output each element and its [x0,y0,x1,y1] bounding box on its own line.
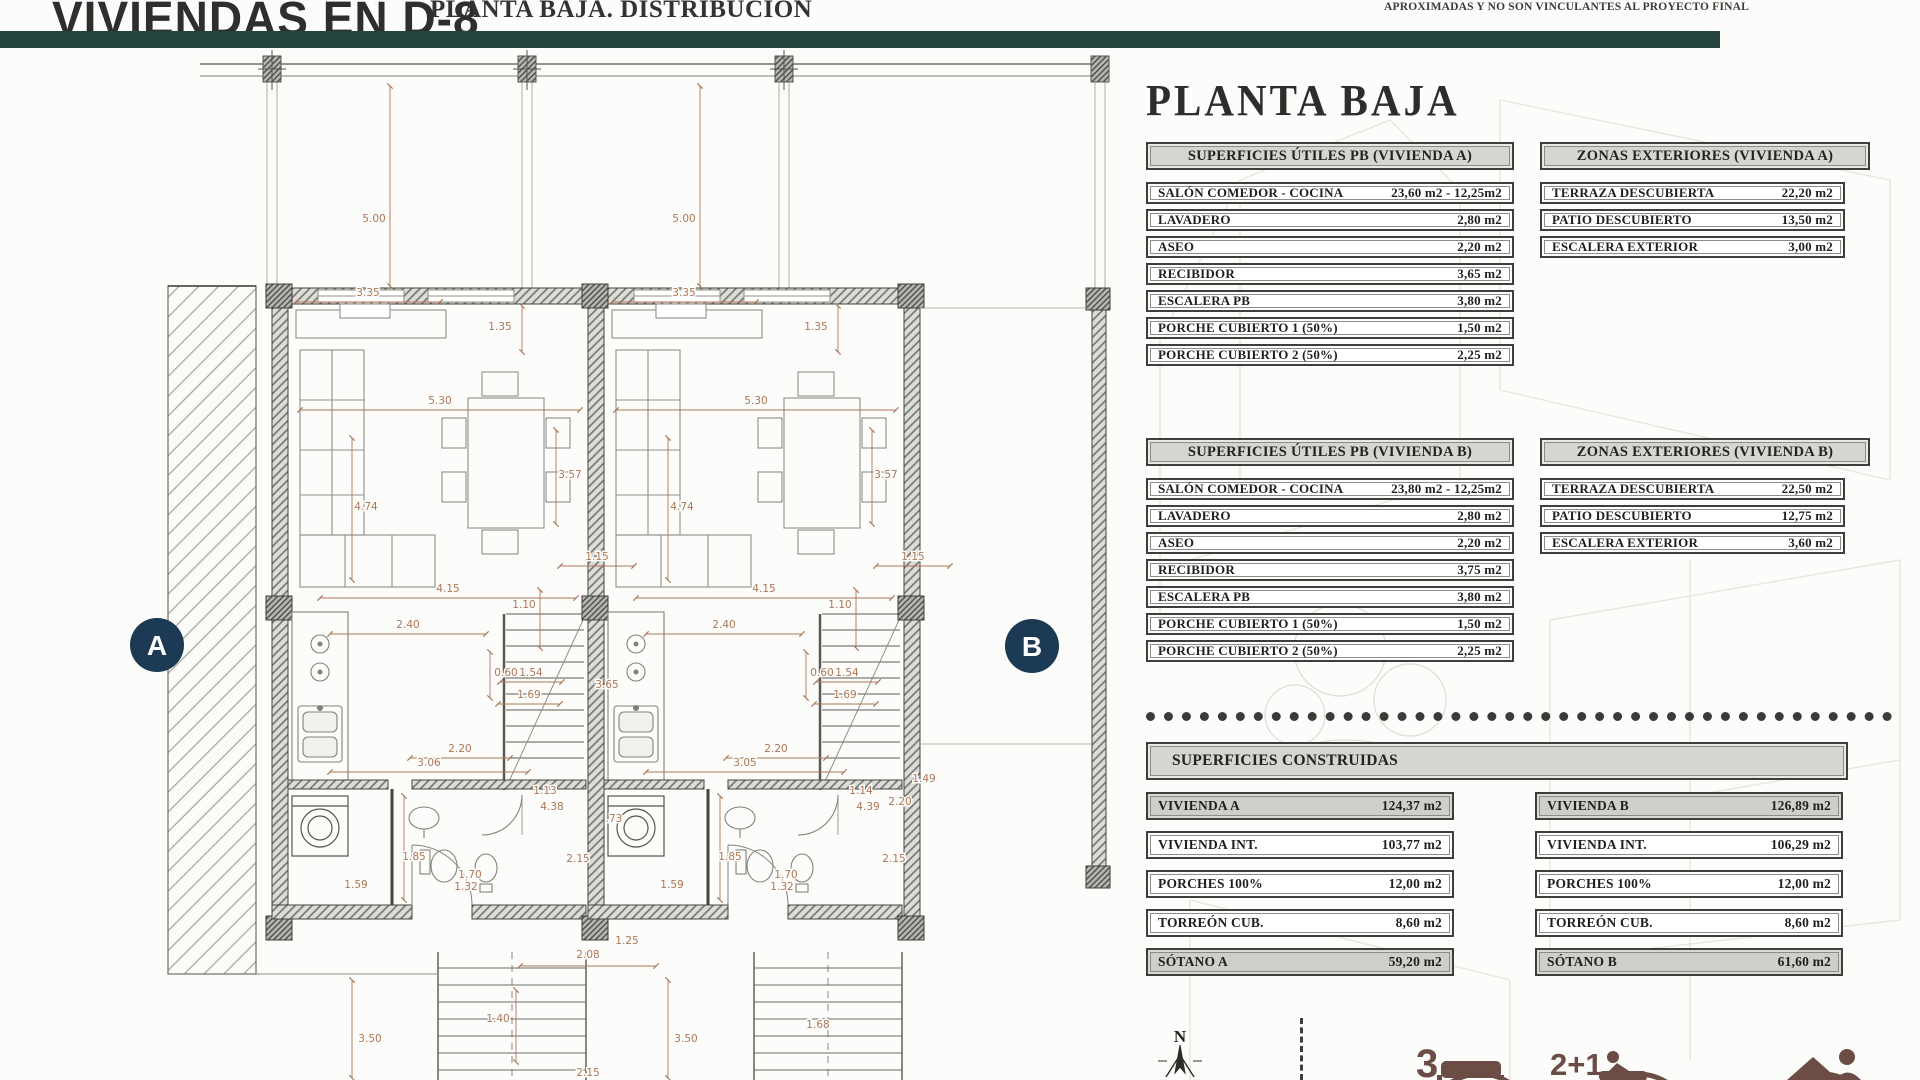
table-row: TORREÓN CUB.8,60 m2 [1146,909,1454,937]
table-row: PORCHE CUBIERTO 2 (50%)2,25 m2 [1146,640,1514,662]
dimension-label: 1.70 [458,869,481,881]
structural-grid [200,50,1109,300]
dimension-label: 2.15 [566,853,589,865]
svg-text:N: N [1174,1027,1187,1046]
dotted-separator [1146,712,1892,721]
row-label: VIVIENDA A [1158,798,1240,814]
table-row: PORCHE CUBIERTO 1 (50%)1,50 m2 [1146,317,1514,339]
floor-plan: 5.005.003.353.351.351.355.305.304.744.74… [0,46,1150,1080]
dimension-label: 1.15 [901,551,924,563]
table-superficies-utiles-vivienda-a: SUPERFICIES ÚTILES PB (VIVIENDA A)SALÓN … [1146,142,1514,371]
exterior-terrace-wall [256,288,1110,974]
construidas-column-b: VIVIENDA B126,89 m2VIVIENDA INT.106,29 m… [1535,792,1843,987]
row-value: 2,20 m2 [1457,239,1502,255]
dimension-label: 4.74 [354,501,378,513]
row-value: 8,60 m2 [1396,915,1442,931]
dimension-label: 2.15 [882,853,905,865]
row-label: PORCHES 100% [1158,876,1263,892]
dimension-label: 2.20 [888,796,911,808]
row-label: TORREÓN CUB. [1158,915,1264,931]
row-value: 22,20 m2 [1782,185,1833,201]
row-value: 124,37 m2 [1382,798,1442,814]
table-row: TERRAZA DESCUBIERTA22,50 m2 [1540,478,1845,500]
dimension-label: 3.06 [417,757,441,769]
dimension-label: 3.35 [672,287,695,299]
row-value: 23,60 m2 - 12,25m2 [1391,185,1502,201]
dimension-label: 4.15 [436,583,459,595]
row-label: RECIBIDOR [1158,266,1235,282]
table-row: ESCALERA EXTERIOR3,00 m2 [1540,236,1845,258]
dimension-label: 1.10 [828,599,851,611]
dimension-label: 4.74 [670,501,694,513]
dimension-lines [296,86,950,1078]
dimension-label: 1.32 [770,881,793,893]
row-value: 3,00 m2 [1788,239,1833,255]
row-value: 8,60 m2 [1785,915,1831,931]
table-row: LAVADERO2,80 m2 [1146,209,1514,231]
dimension-label: 4.38 [540,801,563,813]
table-row: LAVADERO2,80 m2 [1146,505,1514,527]
row-value: 61,60 m2 [1778,954,1831,970]
dimension-label: 1.70 [774,869,797,881]
table-header: SUPERFICIES ÚTILES PB (VIVIENDA A) [1146,142,1514,170]
dimension-label: 1.85 [718,851,741,863]
dimension-label: 3.50 [358,1033,381,1045]
table-row: ESCALERA EXTERIOR3,60 m2 [1540,532,1845,554]
dimension-label: 1.54 [835,667,859,679]
compass-icon: N [1140,1025,1220,1080]
dimension-label: 1.32 [454,881,477,893]
row-label: ESCALERA EXTERIOR [1552,239,1698,255]
row-label: VIVIENDA INT. [1547,837,1647,853]
dimension-label: 1.59 [660,879,683,891]
table-row: ASEO2,20 m2 [1146,532,1514,554]
dimension-label: 2.20 [764,743,787,755]
row-label: ASEO [1158,239,1194,255]
row-label: SÓTANO A [1158,954,1228,970]
table-row: VIVIENDA A124,37 m2 [1146,792,1454,820]
row-label: PATIO DESCUBIERTO [1552,212,1692,228]
unit-marker-b: B [1005,619,1059,673]
row-value: 1,50 m2 [1457,320,1502,336]
row-value: 12,00 m2 [1778,876,1831,892]
row-value: 22,50 m2 [1782,481,1833,497]
table-row: PORCHE CUBIERTO 2 (50%)2,25 m2 [1146,344,1514,366]
table-row: PORCHES 100%12,00 m2 [1535,870,1843,898]
dimension-label: .73 [606,813,623,825]
row-label: TERRAZA DESCUBIERTA [1552,185,1714,201]
row-label: PATIO DESCUBIERTO [1552,508,1692,524]
footer-dashed-divider [1300,1018,1303,1080]
dimension-label: 3.57 [874,469,897,481]
table-header: SUPERFICIES ÚTILES PB (VIVIENDA B) [1146,438,1514,466]
table-zonas-exteriores-vivienda-b: ZONAS EXTERIORES (VIVIENDA B)TERRAZA DES… [1540,438,1870,559]
svg-text:B: B [1022,631,1042,662]
dimension-label: 1.10 [512,599,535,611]
dimension-label: 1.35 [804,321,827,333]
house-person-icon [1787,1049,1861,1080]
dimension-label: 1.69 [517,689,540,701]
page-title: PLANTA BAJA [1146,74,1460,126]
table-row: PATIO DESCUBIERTO12,75 m2 [1540,505,1845,527]
table-header: SUPERFICIES CONSTRUIDAS [1146,742,1848,780]
dimension-label: 3.57 [558,469,581,481]
table-row: SÓTANO B61,60 m2 [1535,948,1843,976]
table-superficies-construidas: SUPERFICIES CONSTRUIDAS VIVIENDA A124,37… [1146,742,1890,987]
row-value: 2,80 m2 [1457,212,1502,228]
table-row: SALÓN COMEDOR - COCINA23,80 m2 - 12,25m2 [1146,478,1514,500]
dimension-label: 3.50 [674,1033,697,1045]
row-label: ASEO [1158,535,1194,551]
row-value: 2,25 m2 [1457,643,1502,659]
table-row: TERRAZA DESCUBIERTA22,20 m2 [1540,182,1845,204]
dimension-label: 1.14 [849,785,873,797]
bed-icon [1437,1061,1504,1080]
table-row: PORCHES 100%12,00 m2 [1146,870,1454,898]
dimension-label: 3.35 [356,287,379,299]
row-value: 2,80 m2 [1457,508,1502,524]
dimension-label: 1.25 [615,935,638,947]
dimension-label: 1.85 [402,851,425,863]
row-value: 13,50 m2 [1782,212,1833,228]
dimension-label: 0.60 [810,667,833,679]
table-row: RECIBIDOR3,75 m2 [1146,559,1514,581]
dimension-label: 3.65 [595,679,618,691]
dimension-label: 5.30 [744,395,767,407]
row-value: 1,50 m2 [1457,616,1502,632]
table-row: TORREÓN CUB.8,60 m2 [1535,909,1843,937]
table-row: PORCHE CUBIERTO 1 (50%)1,50 m2 [1146,613,1514,635]
row-label: PORCHE CUBIERTO 2 (50%) [1158,643,1338,659]
dimension-label: 1.15 [585,551,608,563]
table-row: VIVIENDA INT.106,29 m2 [1535,831,1843,859]
unit-marker-a: A [130,618,184,672]
row-value: 3,60 m2 [1788,535,1833,551]
plan-sheet: VIVIENDAS EN D-8 PLANTA BAJA. DISTRIBUCI… [0,0,1920,1080]
dimension-label: 1.13 [533,785,556,797]
row-label: VIVIENDA INT. [1158,837,1258,853]
row-label: SALÓN COMEDOR - COCINA [1158,481,1343,497]
dimension-label: 2.40 [396,619,419,631]
row-label: PORCHE CUBIERTO 1 (50%) [1158,320,1338,336]
row-value: 2,20 m2 [1457,535,1502,551]
table-row: RECIBIDOR3,65 m2 [1146,263,1514,285]
dimension-label: 1.40 [486,1013,509,1025]
row-value: 3,65 m2 [1457,266,1502,282]
row-label: SALÓN COMEDOR - COCINA [1158,185,1343,201]
table-header: ZONAS EXTERIORES (VIVIENDA A) [1540,142,1870,170]
row-value: 106,29 m2 [1771,837,1831,853]
table-superficies-utiles-vivienda-b: SUPERFICIES ÚTILES PB (VIVIENDA B)SALÓN … [1146,438,1514,667]
row-label: LAVADERO [1158,508,1231,524]
table-row: ASEO2,20 m2 [1146,236,1514,258]
dimension-label: 1.54 [519,667,543,679]
row-value: 103,77 m2 [1382,837,1442,853]
row-label: PORCHES 100% [1547,876,1652,892]
row-value: 126,89 m2 [1771,798,1831,814]
row-label: TORREÓN CUB. [1547,915,1653,931]
dimension-label: 5.00 [362,213,385,225]
table-row: PATIO DESCUBIERTO13,50 m2 [1540,209,1845,231]
svg-text:A: A [147,630,167,661]
table-row: SALÓN COMEDOR - COCINA23,60 m2 - 12,25m2 [1146,182,1514,204]
construidas-column-a: VIVIENDA A124,37 m2VIVIENDA INT.103,77 m… [1146,792,1454,987]
row-value: 23,80 m2 - 12,25m2 [1391,481,1502,497]
row-value: 3,80 m2 [1457,293,1502,309]
row-value: 3,75 m2 [1457,562,1502,578]
dimension-label: 1.59 [344,879,367,891]
dimension-label: 1.35 [488,321,511,333]
dimension-label: 0.60 [494,667,517,679]
row-label: PORCHE CUBIERTO 2 (50%) [1158,347,1338,363]
feature-icons: 3 2+1 [1395,1005,1920,1080]
row-label: LAVADERO [1158,212,1231,228]
dimension-label: 1.49 [912,773,935,785]
dimension-label: 2.08 [576,949,599,961]
dimension-label: 4.39 [856,801,879,813]
row-value: 2,25 m2 [1457,347,1502,363]
row-value: 12,75 m2 [1782,508,1833,524]
dimension-label: 1.68 [806,1019,829,1031]
dimension-label: 5.30 [428,395,451,407]
row-label: RECIBIDOR [1158,562,1235,578]
row-label: ESCALERA PB [1158,589,1250,605]
bedrooms-count: 3 [1416,1042,1438,1080]
dimension-label: 4.15 [752,583,775,595]
dimension-label: 1.69 [833,689,856,701]
dimension-label: 3.05 [733,757,756,769]
table-zonas-exteriores-vivienda-a: ZONAS EXTERIORES (VIVIENDA A)TERRAZA DES… [1540,142,1870,263]
row-label: SÓTANO B [1547,954,1617,970]
table-row: VIVIENDA B126,89 m2 [1535,792,1843,820]
bathtub-icon [1599,1051,1647,1080]
dimension-label: 5.00 [672,213,695,225]
dimension-label: 2.20 [448,743,471,755]
row-label: PORCHE CUBIERTO 1 (50%) [1158,616,1338,632]
row-label: VIVIENDA B [1547,798,1629,814]
dimension-label: 2.40 [712,619,735,631]
row-value: 3,80 m2 [1457,589,1502,605]
sheet-disclaimer: APROXIMADAS Y NO SON VINCULANTES AL PROY… [1384,1,1749,13]
table-header: ZONAS EXTERIORES (VIVIENDA B) [1540,438,1870,466]
table-row: ESCALERA PB3,80 m2 [1146,290,1514,312]
dimension-label: 2.15 [576,1067,599,1079]
row-label: ESCALERA PB [1158,293,1250,309]
site-boundary-hatch [168,286,256,974]
sheet-subtitle: PLANTA BAJA. DISTRIBUCIÓN [430,0,812,24]
table-row: VIVIENDA INT.103,77 m2 [1146,831,1454,859]
bathrooms-count: 2+1 [1550,1047,1603,1080]
table-row: ESCALERA PB3,80 m2 [1146,586,1514,608]
row-label: TERRAZA DESCUBIERTA [1552,481,1714,497]
table-row: SÓTANO A59,20 m2 [1146,948,1454,976]
row-value: 59,20 m2 [1389,954,1442,970]
row-value: 12,00 m2 [1389,876,1442,892]
row-label: ESCALERA EXTERIOR [1552,535,1698,551]
